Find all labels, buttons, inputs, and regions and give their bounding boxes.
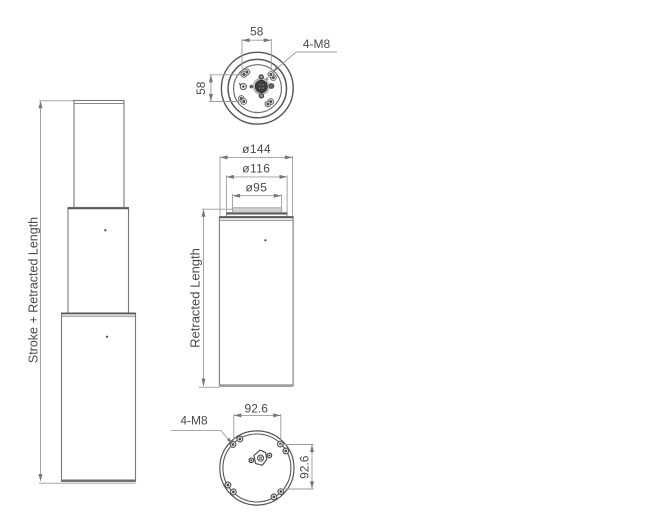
svg-text:4-M8: 4-M8 xyxy=(180,414,208,428)
svg-text:92.6: 92.6 xyxy=(245,402,269,416)
svg-text:ø95: ø95 xyxy=(245,181,267,195)
svg-text:ø144: ø144 xyxy=(242,142,271,156)
svg-text:Retracted Length: Retracted Length xyxy=(187,248,202,348)
svg-text:ø116: ø116 xyxy=(242,161,270,175)
svg-text:58: 58 xyxy=(250,25,264,39)
svg-text:Stroke + Retracted Length: Stroke + Retracted Length xyxy=(27,217,41,363)
svg-text:58: 58 xyxy=(194,81,208,95)
svg-text:4-M8: 4-M8 xyxy=(303,37,331,51)
svg-text:92.6: 92.6 xyxy=(297,455,311,479)
